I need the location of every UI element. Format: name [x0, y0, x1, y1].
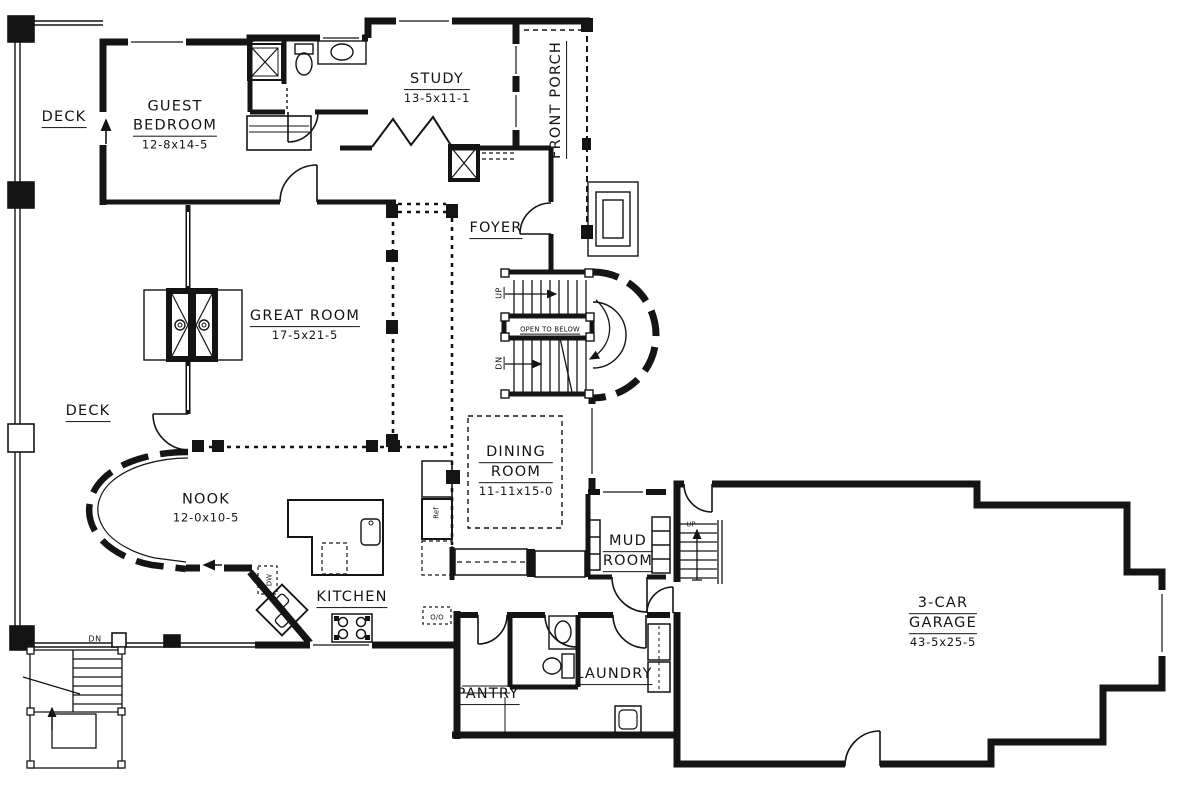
- label-deck-dn: DN: [88, 627, 101, 648]
- bath-vanity: [318, 41, 366, 64]
- floor-plan-canvas: DECK GUEST BEDROOM 12-8x14-5 STUDY 13-5x…: [0, 0, 1200, 791]
- kitchen-island: [288, 500, 383, 575]
- powder-toilet: [543, 654, 574, 678]
- entry-steps: [588, 182, 638, 256]
- label-dishwasher: DW: [257, 574, 278, 586]
- room-label-study: STUDY 13-5x11-1: [404, 70, 470, 106]
- label-stair-dn: DN: [487, 356, 508, 369]
- room-label-great-room: GREAT ROOM 17-5x21-5: [250, 307, 360, 343]
- guest-closet: [247, 116, 311, 150]
- room-label-front-porch: FRONT PORCH: [545, 41, 567, 159]
- door-arcs: [106, 112, 880, 766]
- deck-stairs: [23, 647, 125, 768]
- room-label-deck-lower: DECK: [66, 400, 111, 422]
- label-refrigerator: Ref: [424, 507, 445, 519]
- garage-stairs: [677, 520, 722, 584]
- cooktop: [332, 614, 372, 642]
- label-double-oven: O/O: [430, 605, 444, 626]
- shower: [248, 44, 282, 80]
- room-label-nook: NOOK 12-0x10-5: [173, 491, 239, 526]
- toilet: [295, 44, 313, 75]
- room-label-kitchen: KITCHEN: [316, 586, 387, 608]
- room-label-deck-upper: DECK: [42, 106, 87, 128]
- garage-window: [1159, 590, 1166, 656]
- label-open-to-below: OPEN TO BELOW: [520, 317, 580, 338]
- label-stair-up: UP: [487, 287, 508, 299]
- room-label-foyer: FOYER: [469, 217, 522, 239]
- fireplace: [144, 288, 242, 362]
- label-garage-up: UP: [686, 512, 695, 533]
- room-label-mud-room: MUD ROOM: [603, 532, 653, 572]
- room-label-garage: 3-CAR GARAGE 43-5x25-5: [909, 594, 977, 650]
- butler-counters: [455, 549, 585, 577]
- room-label-dining-room: DINING ROOM 11-11x15-0: [479, 443, 553, 499]
- curved-stair-wall: [593, 272, 656, 398]
- foyer-closet: [450, 146, 514, 180]
- room-label-guest-bedroom: GUEST BEDROOM 12-8x14-5: [133, 98, 217, 153]
- room-label-laundry: LAUNDRY: [575, 663, 652, 685]
- room-label-pantry: PANTRY: [457, 683, 520, 705]
- structural-columns: [192, 204, 460, 484]
